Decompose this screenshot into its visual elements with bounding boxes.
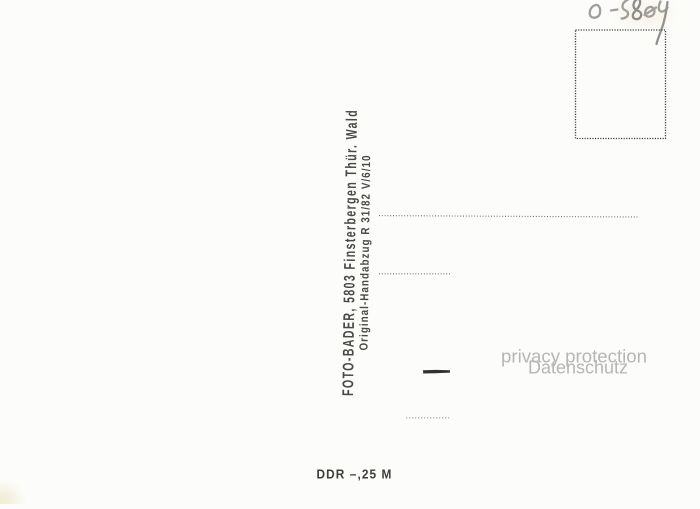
svg-text:Original-Handabzug R 31/82 V/6: Original-Handabzug R 31/82 V/6/10: [357, 154, 374, 350]
svg-text:DDR –,25 M: DDR –,25 M: [317, 467, 393, 482]
svg-text:Datenschutz: Datenschutz: [528, 357, 628, 378]
